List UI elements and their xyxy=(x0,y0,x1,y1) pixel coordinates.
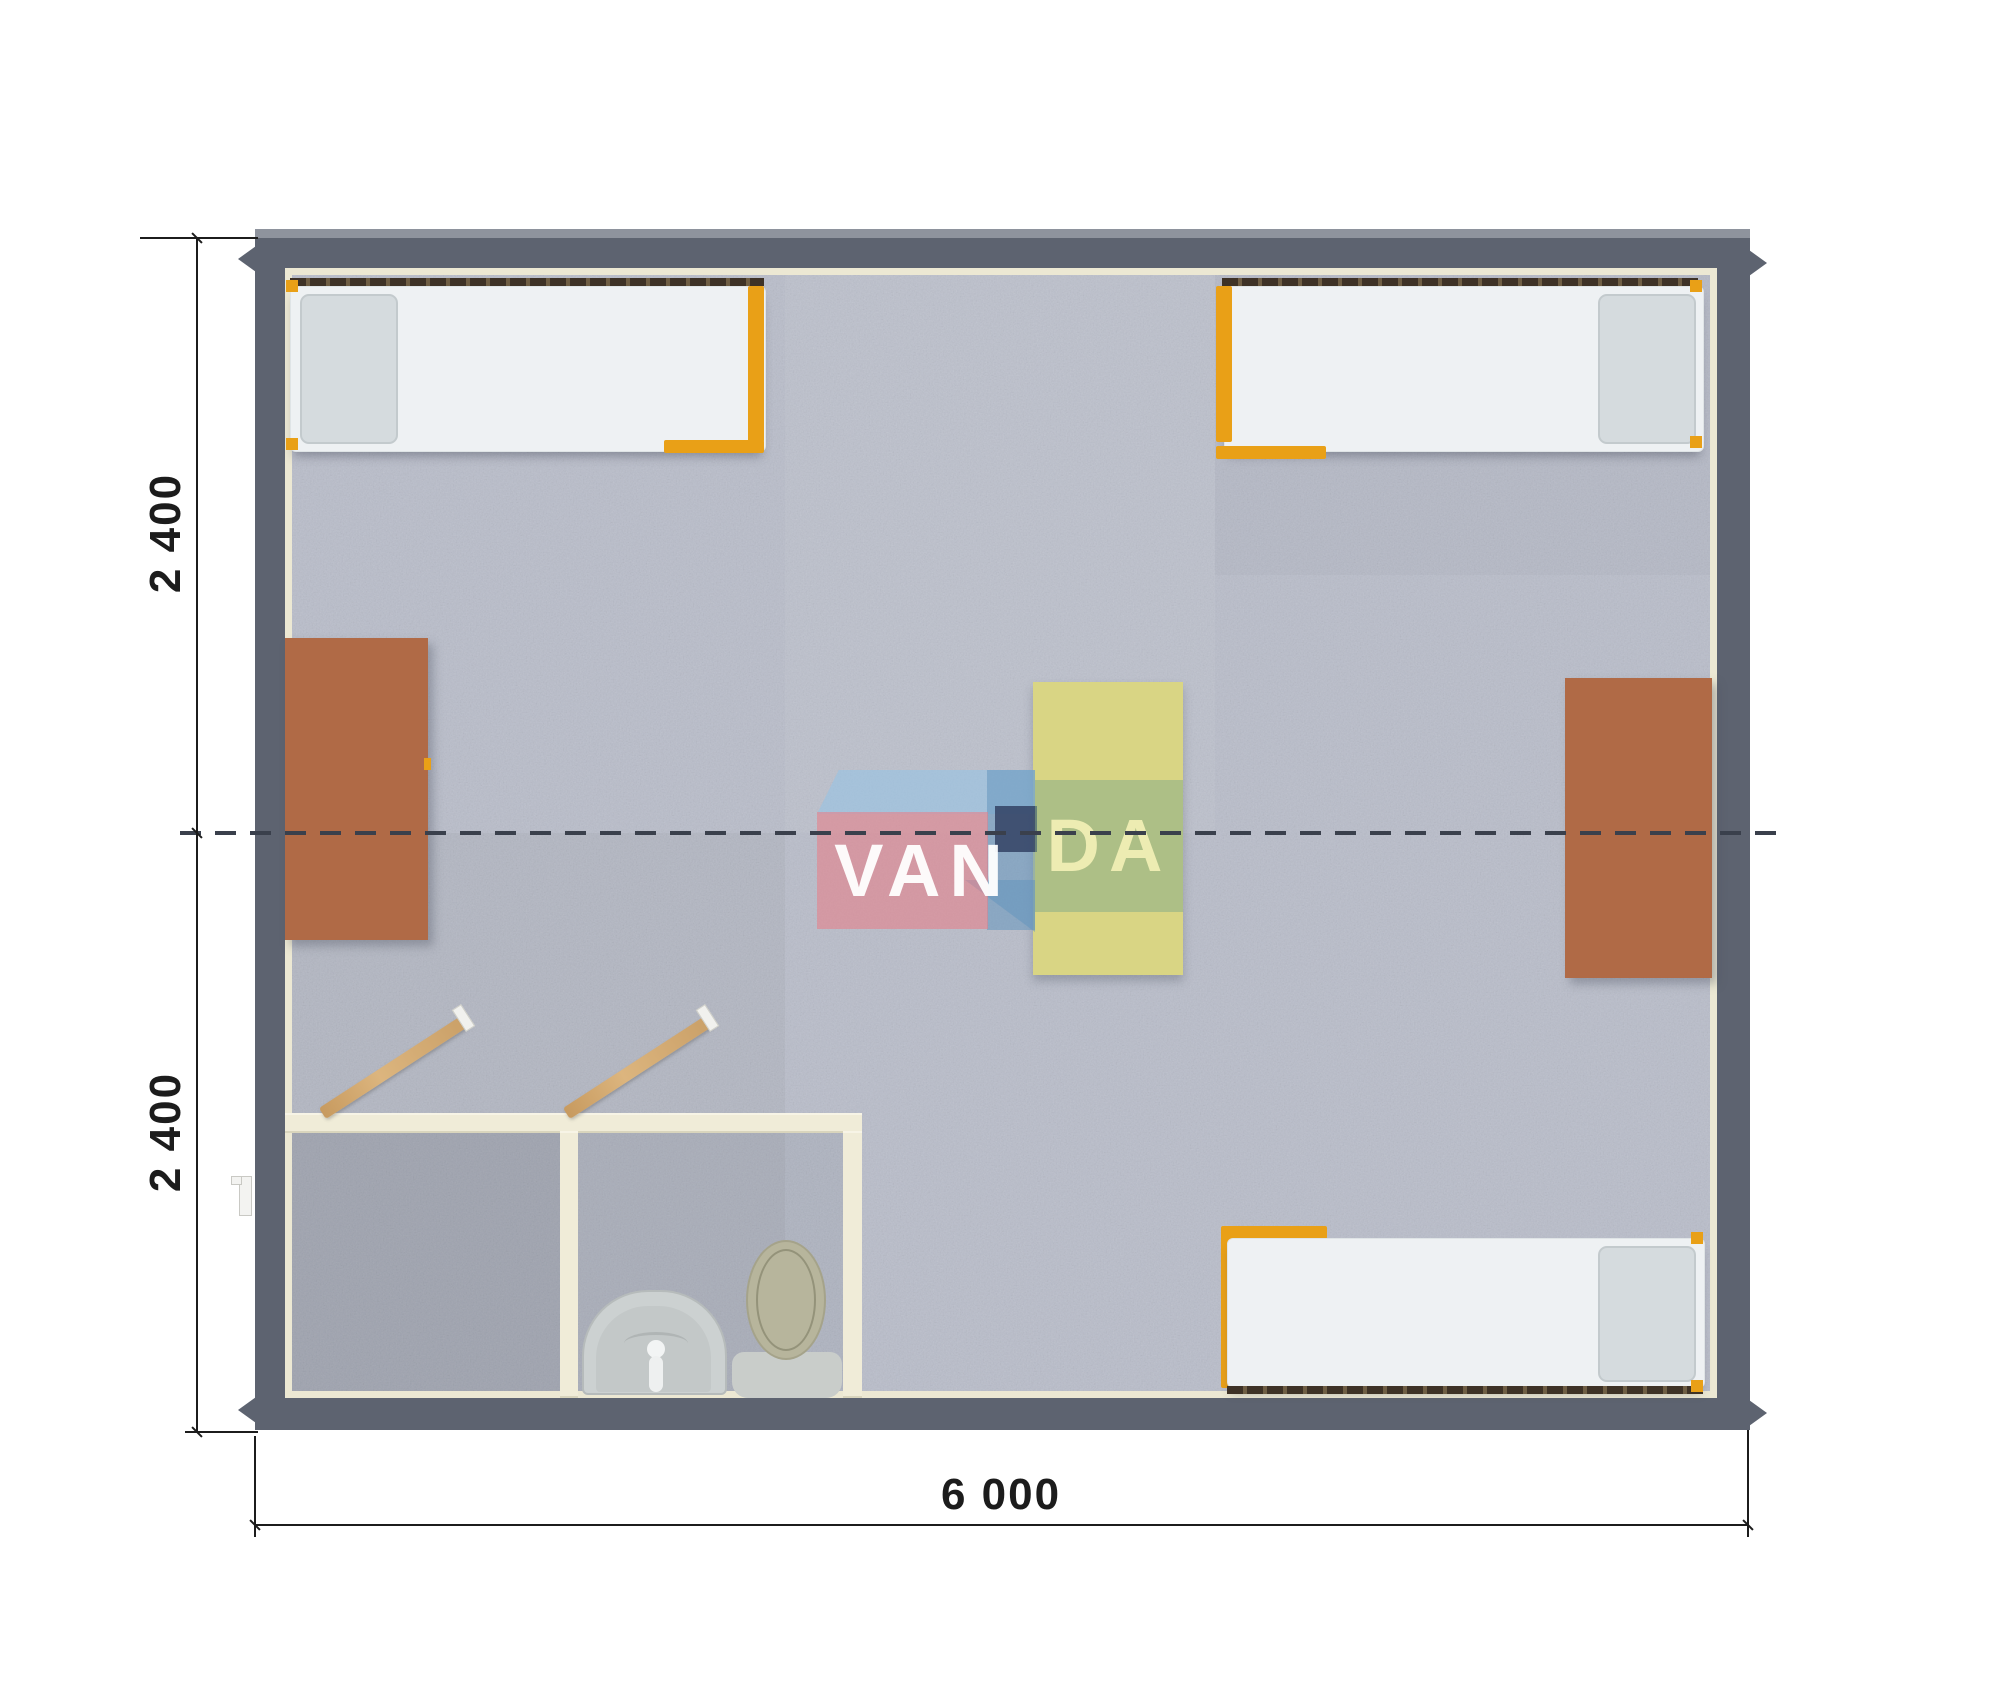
bed-frame-tab xyxy=(1690,436,1702,448)
dimension-label-left-top: 2 400 xyxy=(141,433,191,633)
pillow xyxy=(300,294,398,444)
dimension-line-bottom xyxy=(255,1524,1748,1526)
corner-casting-top-right xyxy=(1749,250,1767,276)
bed-frame-tab xyxy=(286,280,298,292)
desk-right xyxy=(1565,678,1712,978)
bed-wall-rail xyxy=(1227,1386,1703,1394)
bed-wall-rail xyxy=(1222,278,1698,286)
bed-frame-foot-rail xyxy=(664,440,764,453)
floor-plan: VAN DA 2 400 2 400 6 000 xyxy=(0,0,2000,1701)
faucet xyxy=(649,1356,663,1392)
bed-frame-tab xyxy=(286,438,298,450)
bed-frame-tab xyxy=(1690,280,1702,292)
corner-casting-bottom-right xyxy=(1749,1400,1767,1426)
desk-left-bracket xyxy=(424,758,431,770)
toilet xyxy=(730,1240,842,1398)
bed-top-left xyxy=(286,276,768,456)
bed-frame-tab xyxy=(1691,1380,1703,1392)
bed-top-right xyxy=(1216,276,1702,456)
corner-casting-bottom-left xyxy=(238,1397,256,1423)
table-center xyxy=(1033,682,1183,975)
toilet-lid-inner xyxy=(756,1249,816,1351)
desk-left xyxy=(285,638,428,940)
pillow xyxy=(1598,294,1696,444)
bed-bottom-right xyxy=(1221,1224,1703,1394)
dimension-ext-bottom-end xyxy=(1747,1430,1749,1537)
bed-wall-rail xyxy=(290,278,764,286)
bed-frame-foot-rail xyxy=(1216,446,1326,459)
pillow xyxy=(1598,1246,1696,1382)
bed-frame-tab xyxy=(1691,1232,1703,1244)
bed-frame-foot-bar xyxy=(1216,286,1232,442)
module-joint-dashed-line xyxy=(180,831,1777,835)
dimension-label-left-bottom: 2 400 xyxy=(141,1032,191,1232)
dimension-label-bottom: 6 000 xyxy=(851,1470,1151,1520)
bathroom-divider-wall xyxy=(560,1131,578,1398)
bathroom-left-floor xyxy=(292,1133,560,1391)
dimension-ext-bottom-start xyxy=(254,1436,256,1537)
corner-casting-top-left xyxy=(238,246,256,272)
entry-door-handle-foot xyxy=(231,1176,242,1185)
bathroom-east-wall xyxy=(843,1131,862,1398)
bed-frame-foot-bar xyxy=(748,286,764,442)
